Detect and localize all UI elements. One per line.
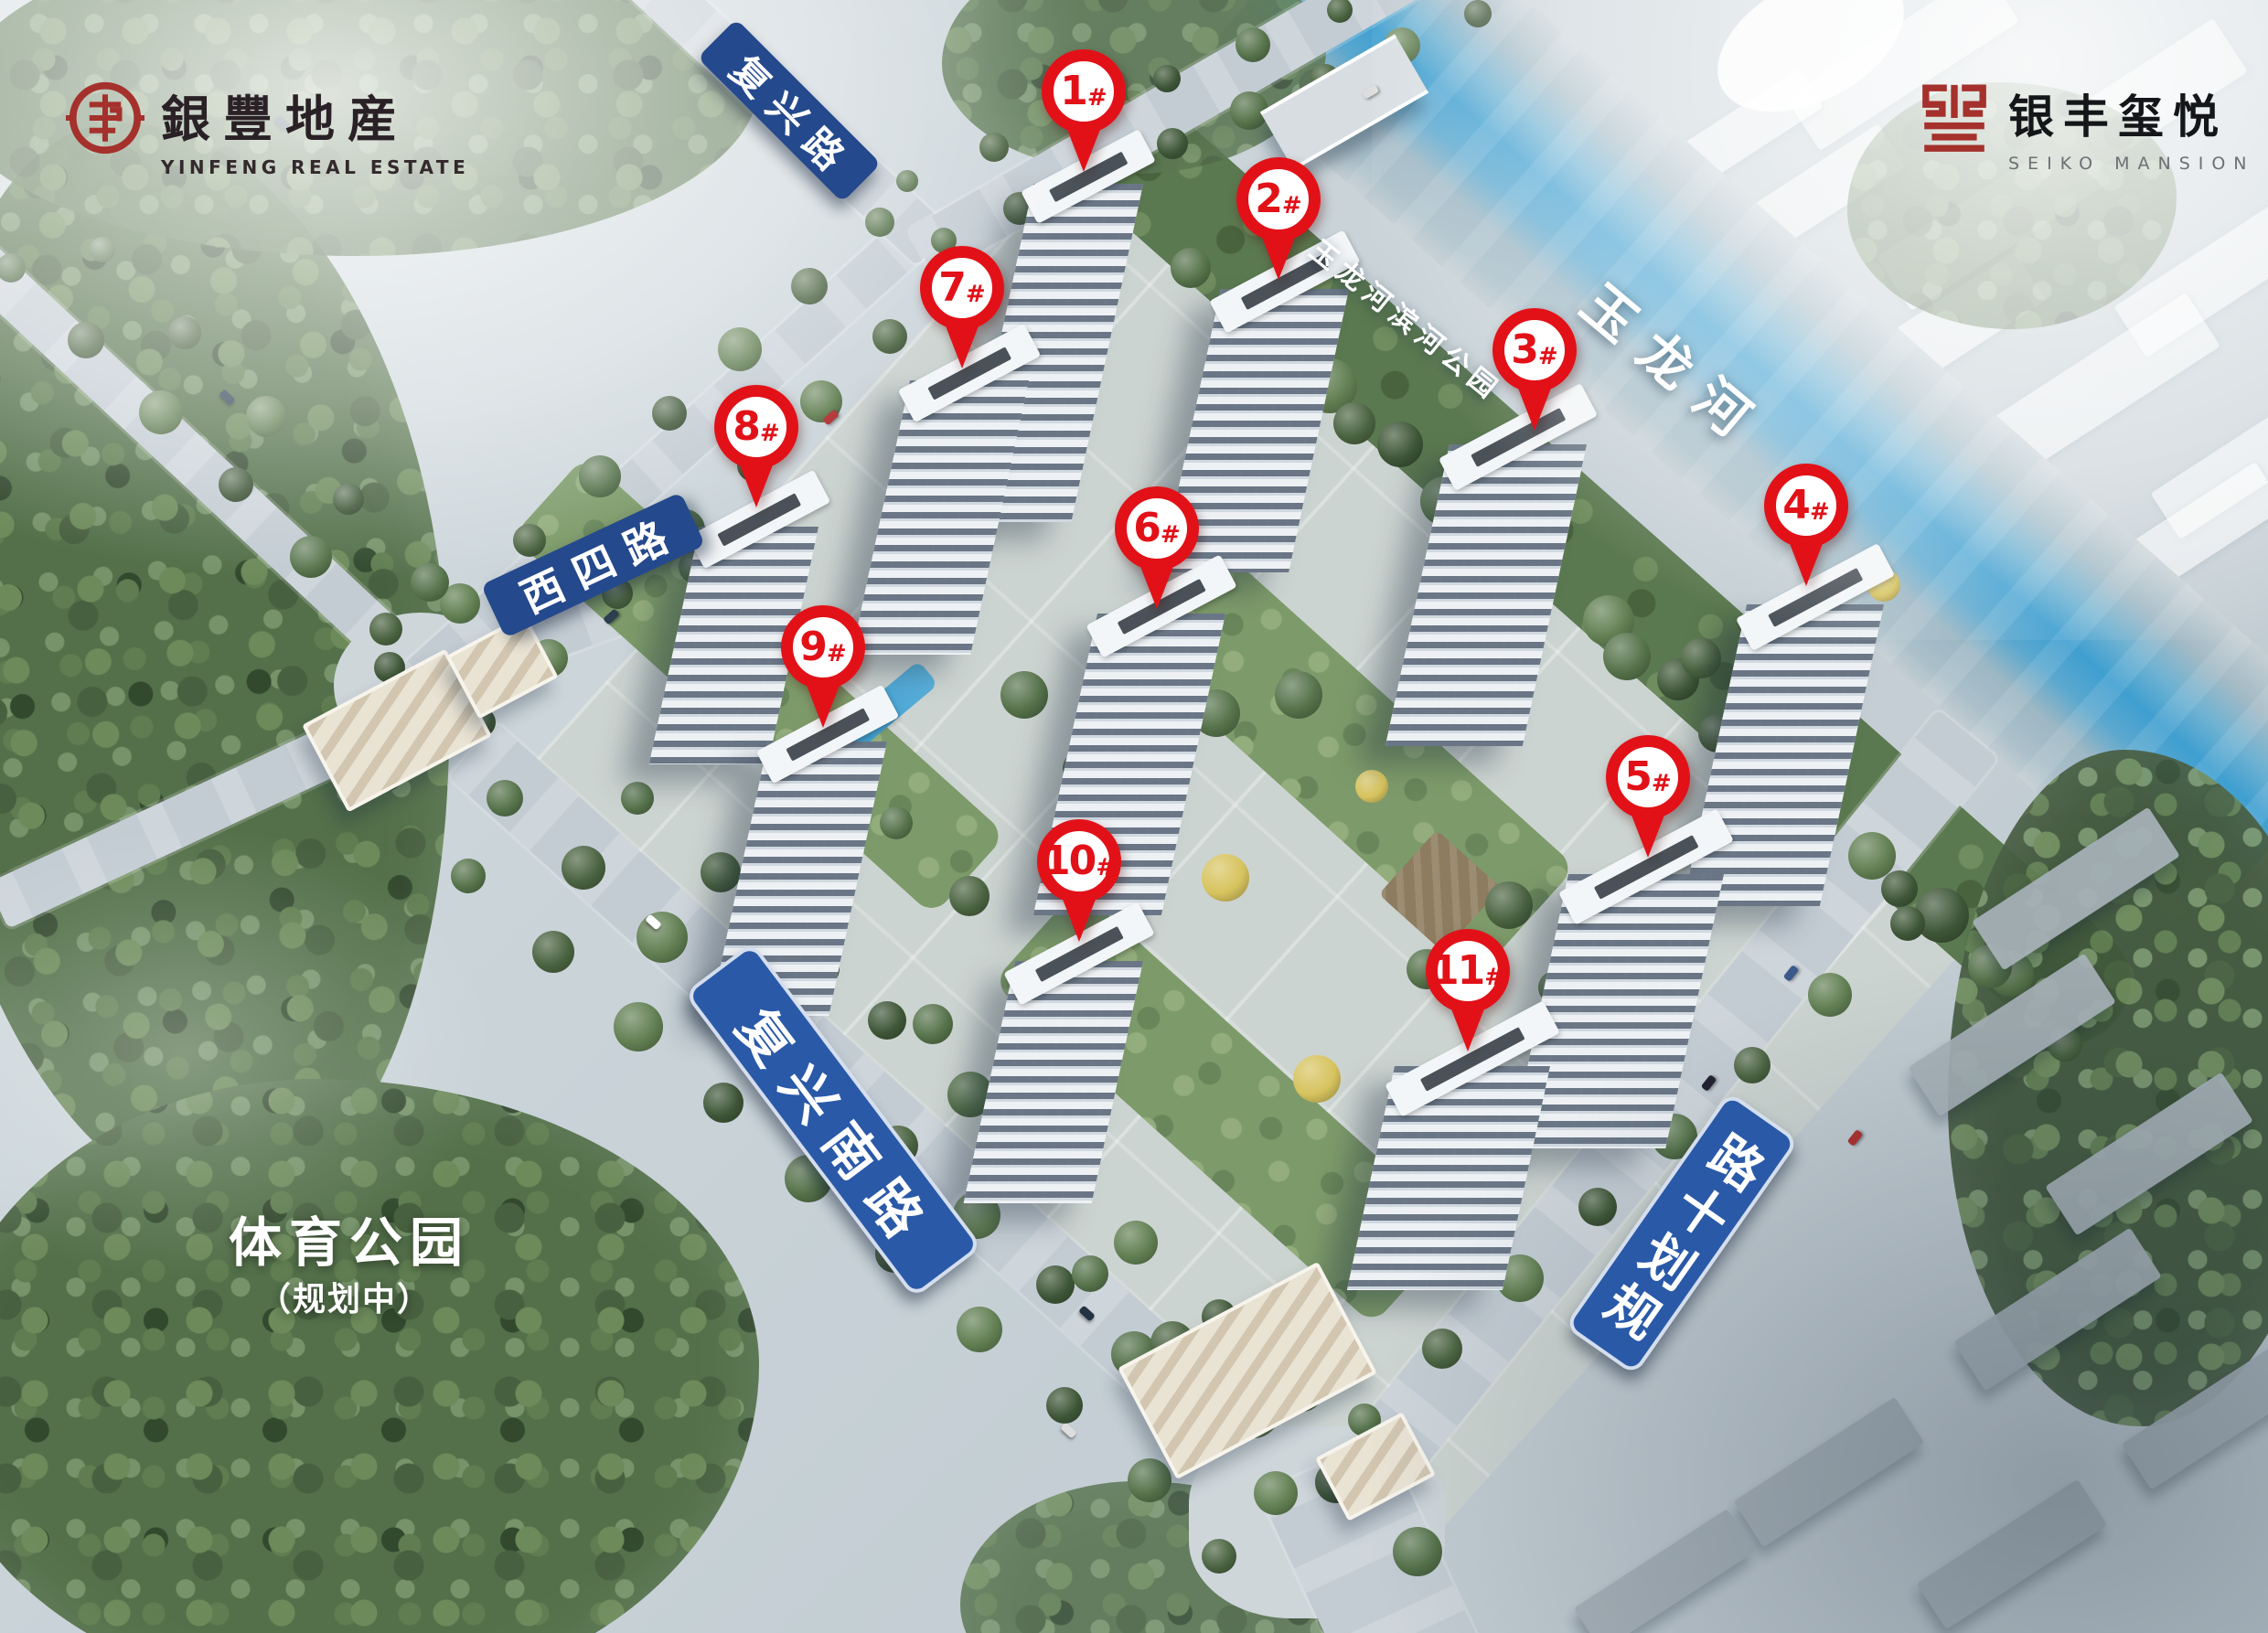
- marker-tail: [1515, 383, 1554, 431]
- car: [1847, 1129, 1864, 1147]
- marker-pin: 7#: [920, 246, 1004, 330]
- cars: [0, 0, 2268, 1633]
- car: [822, 409, 840, 425]
- marker-pin: 10#: [1037, 819, 1121, 903]
- sports-park-status: （规划中）: [258, 1273, 432, 1320]
- marker-pin: 1#: [1042, 49, 1126, 133]
- seiko-mansion-seal-icon: [1917, 80, 1992, 159]
- car: [1078, 1305, 1096, 1321]
- car: [219, 389, 236, 405]
- marker-pin: 6#: [1115, 486, 1199, 571]
- building-marker-8[interactable]: 8#: [714, 385, 798, 507]
- marker-pin: 9#: [781, 605, 865, 689]
- building-marker-10[interactable]: 10#: [1037, 819, 1121, 942]
- building-marker-9[interactable]: 9#: [781, 605, 865, 728]
- yinfeng-name-en: YINFENG REAL ESTATE: [161, 156, 469, 178]
- marker-pin: 8#: [714, 385, 798, 469]
- marker-tail: [1060, 894, 1098, 942]
- marker-tail: [1064, 124, 1103, 172]
- car: [1783, 965, 1800, 982]
- marker-pin: 11#: [1426, 929, 1510, 1013]
- building-marker-4[interactable]: 4#: [1764, 464, 1848, 586]
- building-marker-7[interactable]: 7#: [920, 246, 1004, 368]
- car: [603, 608, 620, 624]
- marker-tail: [943, 321, 981, 368]
- seiko-name-cn: 银丰玺悦: [2008, 80, 2255, 146]
- yinfeng-seal-icon: [66, 79, 144, 161]
- building-marker-3[interactable]: 3#: [1492, 308, 1577, 431]
- marker-pin: 3#: [1492, 308, 1577, 392]
- marker-tail: [1449, 1004, 1487, 1051]
- seiko-mansion-logo: 银丰玺悦 SEIKO MANSION: [1917, 80, 2255, 174]
- building-marker-11[interactable]: 11#: [1426, 929, 1510, 1051]
- building-marker-2[interactable]: 2#: [1236, 157, 1321, 280]
- building-marker-1[interactable]: 1#: [1042, 49, 1126, 172]
- seiko-name-en: SEIKO MANSION: [2008, 154, 2255, 174]
- marker-tail: [1138, 561, 1176, 609]
- marker-tail: [1787, 539, 1825, 586]
- marker-tail: [737, 460, 776, 507]
- car: [645, 913, 662, 930]
- marker-pin: 5#: [1606, 735, 1690, 819]
- marker-tail: [1629, 810, 1667, 858]
- marker-tail: [1259, 232, 1298, 280]
- building-marker-6[interactable]: 6#: [1115, 486, 1199, 609]
- car: [1701, 1074, 1717, 1092]
- car: [1362, 84, 1379, 99]
- yinfeng-name-cn: 銀豐地産: [161, 79, 469, 151]
- car: [1060, 1422, 1077, 1438]
- marker-pin: 2#: [1236, 157, 1321, 241]
- yinfeng-logo: 銀豐地産 YINFENG REAL ESTATE: [66, 79, 469, 178]
- sports-park-label: 体育公园: [229, 1200, 470, 1276]
- marker-tail: [804, 680, 842, 728]
- masterplan-rendering: 复兴路 西四路 复兴南路 路十划规 玉龙河 玉龙河滨河公园 体育公园 （规划中）…: [0, 0, 2268, 1633]
- marker-pin: 4#: [1764, 464, 1848, 548]
- building-marker-5[interactable]: 5#: [1606, 735, 1690, 858]
